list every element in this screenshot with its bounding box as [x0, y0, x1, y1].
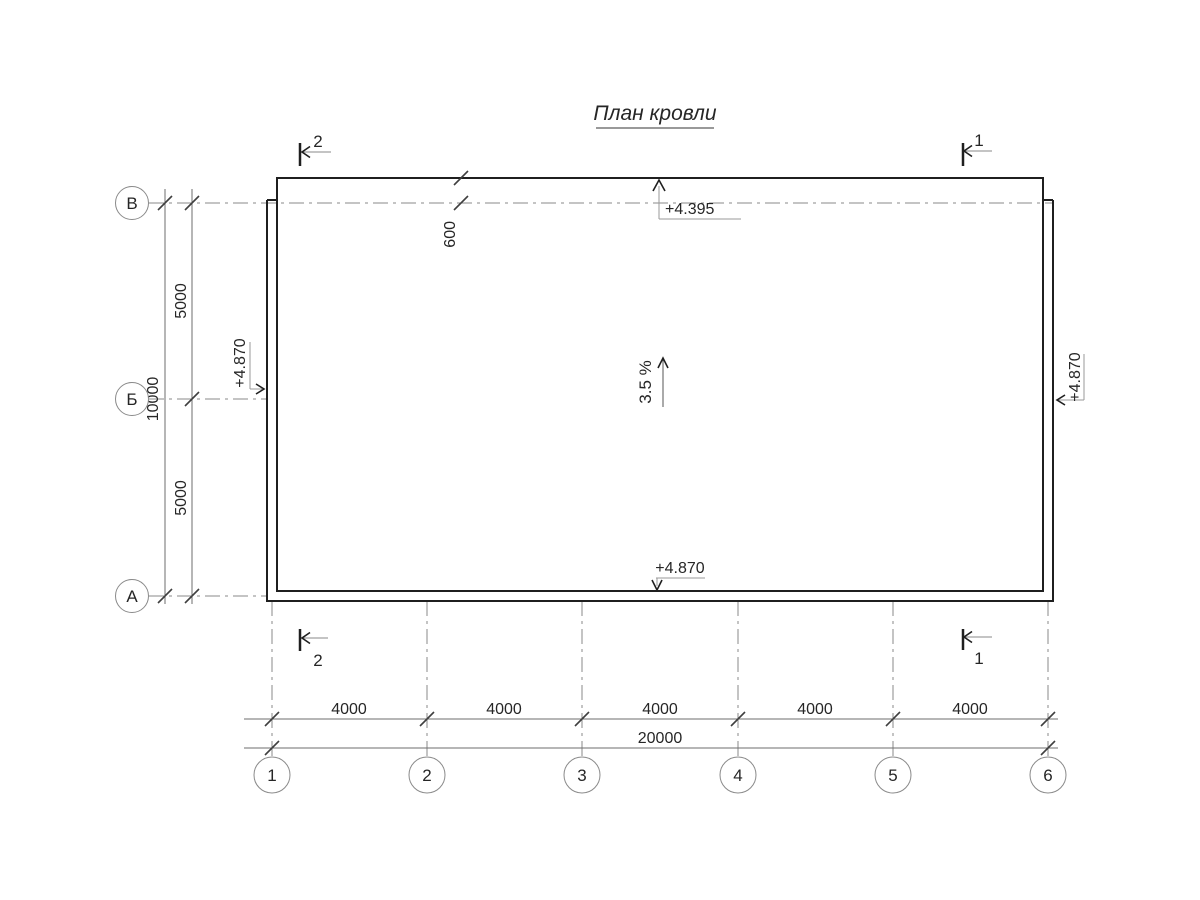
eave-offset-dimension: 600: [442, 171, 468, 248]
section-mark-top-left: 2: [300, 132, 331, 166]
section-mark-top-right: 1: [963, 131, 992, 166]
elevation-mark-left: +4.870: [232, 338, 264, 394]
axis-label-col-2: 2: [422, 766, 431, 785]
section-label: 1: [974, 131, 983, 150]
axis-label-col-1: 1: [267, 766, 276, 785]
axis-label-row-b: Б: [126, 390, 137, 409]
axis-label-col-6: 6: [1043, 766, 1052, 785]
section-label: 2: [313, 651, 322, 670]
dim-text-left-seg-2: 5000: [173, 480, 190, 516]
page-title: План кровли: [593, 102, 717, 125]
dim-text-bottom-seg-4: 4000: [797, 701, 833, 718]
elevation-text-right: +4.870: [1067, 352, 1084, 401]
axis-label-row-a: А: [126, 587, 138, 606]
dim-text-bottom-total: 20000: [638, 730, 683, 747]
axis-label-col-5: 5: [888, 766, 897, 785]
axis-grid-lines: [149, 203, 1053, 757]
building-outline: [267, 178, 1053, 601]
bottom-dimensions: 4000 4000 4000 4000 4000 20000: [244, 701, 1058, 755]
dim-text-bottom-seg-5: 4000: [952, 701, 988, 718]
section-mark-bottom-left: 2: [300, 629, 328, 670]
slope-mark: 3.5 %: [636, 358, 668, 407]
col-axis-bubbles: 1 2 3 4 5 6: [254, 757, 1066, 793]
roof-plan-drawing: План кровли 10000 5000 5000 4000 4000 40…: [0, 0, 1200, 900]
roof-plan-svg: План кровли 10000 5000 5000 4000 4000 40…: [0, 0, 1200, 900]
dim-text-bottom-seg-2: 4000: [486, 701, 522, 718]
row-axis-bubbles: В Б А: [116, 187, 149, 613]
dim-text-bottom-seg-1: 4000: [331, 701, 367, 718]
section-label: 2: [313, 132, 322, 151]
section-mark-bottom-right: 1: [963, 629, 992, 668]
parapet-outer-outline: [267, 200, 1053, 601]
dim-text-left-seg-1: 5000: [173, 283, 190, 319]
axis-label-row-v: В: [126, 194, 137, 213]
elevation-mark-bottom: +4.870: [652, 560, 705, 590]
elevation-text-bottom: +4.870: [655, 560, 704, 577]
dim-text-eave-offset: 600: [442, 221, 459, 248]
axis-label-col-4: 4: [733, 766, 742, 785]
elevation-mark-right: +4.870: [1057, 352, 1084, 405]
left-dimensions: 10000 5000 5000: [145, 189, 199, 604]
title-block: План кровли: [593, 102, 717, 128]
elevation-mark-top: +4.395: [653, 180, 741, 219]
axis-label-col-3: 3: [577, 766, 586, 785]
dim-text-bottom-seg-3: 4000: [642, 701, 678, 718]
roof-edge-outline: [277, 178, 1043, 591]
elevation-text-left: +4.870: [232, 338, 249, 387]
section-label: 1: [974, 649, 983, 668]
slope-text: 3.5 %: [636, 360, 655, 403]
elevation-text-top: +4.395: [665, 201, 714, 218]
